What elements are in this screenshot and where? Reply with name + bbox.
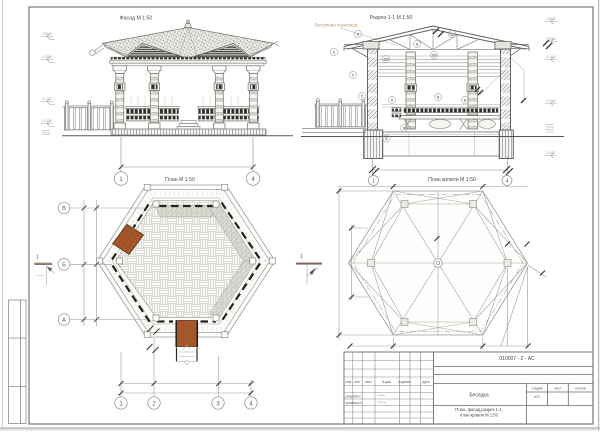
svg-text:План кровли М 1:50: План кровли М 1:50 <box>428 177 476 183</box>
svg-text:№док.: №док. <box>382 380 392 384</box>
svg-text:лист: лист <box>554 387 562 391</box>
svg-text:А: А <box>62 318 66 324</box>
svg-text:12: 12 <box>384 57 389 62</box>
svg-text:план кровли М 1:50: план кровли М 1:50 <box>460 413 499 418</box>
svg-text:1: 1 <box>36 255 39 261</box>
svg-text:1: 1 <box>372 179 375 185</box>
svg-text:-0,420: -0,420 <box>546 151 555 155</box>
svg-text:кол.: кол. <box>354 380 360 384</box>
svg-text:+2,980: +2,980 <box>546 37 556 41</box>
svg-text:+3,640: +3,640 <box>42 32 52 36</box>
svg-text:подпись: подпись <box>398 380 411 384</box>
svg-text:стадия: стадия <box>532 387 543 391</box>
svg-text:План, фасад,разрез 1-1,: План, фасад,разрез 1-1, <box>455 407 503 412</box>
svg-text:Фасад М 1:50: Фасад М 1:50 <box>120 16 153 22</box>
svg-text:+3,640: +3,640 <box>546 17 556 21</box>
svg-text:4: 4 <box>506 179 509 185</box>
svg-text:лист: лист <box>365 380 373 384</box>
svg-text:проверил: проверил <box>346 401 362 405</box>
svg-text:КП: КП <box>534 394 539 399</box>
svg-text:+1,020: +1,020 <box>546 99 556 103</box>
svg-text:Разрез 1-1 М 1:50: Разрез 1-1 М 1:50 <box>370 15 413 21</box>
svg-text:010007 - 2 - АС: 010007 - 2 - АС <box>499 356 535 362</box>
svg-text:+0,150: +0,150 <box>42 119 52 123</box>
svg-text:Битумная черепица: Битумная черепица <box>315 23 358 28</box>
svg-text:+2,440: +2,440 <box>546 55 556 59</box>
svg-text:В: В <box>62 206 66 212</box>
svg-text:План М 1:50: План М 1:50 <box>165 177 195 183</box>
svg-text:разработ.: разработ. <box>346 395 362 399</box>
svg-text:дата: дата <box>422 380 429 384</box>
svg-text:+1,020: +1,020 <box>42 97 52 101</box>
svg-text:1: 1 <box>300 254 303 260</box>
svg-text:Беседка: Беседка <box>469 393 488 399</box>
svg-text:изм: изм <box>346 380 352 384</box>
svg-text:+2,980: +2,980 <box>42 55 52 59</box>
svg-text:Б: Б <box>62 263 66 269</box>
svg-text:листов: листов <box>575 387 586 391</box>
svg-text:10: 10 <box>432 53 437 58</box>
